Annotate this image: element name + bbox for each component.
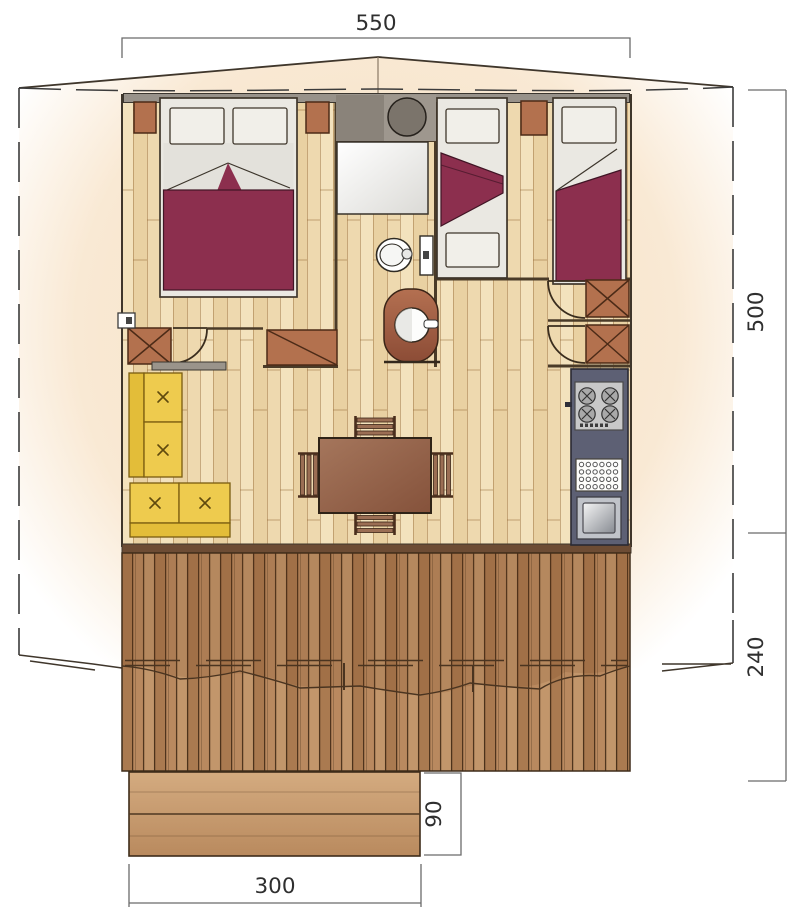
bottom-wall <box>122 544 631 553</box>
bedside-cushion-left <box>134 102 156 133</box>
wardrobe-entrance <box>128 328 171 364</box>
bench-cabinet <box>267 330 337 365</box>
kitchen-handle <box>565 402 572 407</box>
bathroom-counter-left <box>336 95 384 141</box>
dimension-right-240-label: 240 <box>744 636 769 677</box>
dining-chair-right <box>431 454 453 497</box>
dimension-right-500-label: 500 <box>744 291 769 332</box>
bunk-pillow-top <box>446 109 499 143</box>
shower-tray <box>337 142 428 214</box>
dimension-steps-label: 90 <box>422 800 447 827</box>
sofa-back-vertical <box>129 373 144 477</box>
dining-table <box>319 438 431 513</box>
deck-shade <box>122 553 630 694</box>
entrance-mat <box>152 362 226 370</box>
entrance-lock-latch <box>126 317 132 324</box>
deck <box>122 553 630 771</box>
bedside-cushion-middle <box>521 101 547 135</box>
steps <box>129 772 420 856</box>
sofa-back-horizontal <box>130 523 230 537</box>
kitchen-unit <box>565 369 628 545</box>
floor-plan-drawing: 550 500 240 90 300 <box>0 0 800 924</box>
faucet <box>424 320 438 328</box>
dimension-bottom-label: 300 <box>254 874 295 899</box>
double-bed-pillow-right <box>233 108 287 144</box>
single-bed-pillow <box>562 107 616 143</box>
double-bed-pillow-left <box>170 108 224 144</box>
dimension-steps: 90 <box>422 773 461 855</box>
dimension-top: 550 <box>122 11 630 58</box>
dimension-right: 500 240 <box>744 90 786 781</box>
floor-plan: 550 500 240 90 300 <box>0 0 800 924</box>
bedside-cushion-right <box>306 102 329 133</box>
dining-chair-top <box>356 416 395 438</box>
water-heater <box>388 98 426 136</box>
dining-chair-left <box>298 454 320 497</box>
toilet-bowl-inner <box>380 244 404 266</box>
kitchen-sink <box>577 497 621 539</box>
wardrobe-bedroom2 <box>586 280 629 317</box>
vanity <box>384 289 440 362</box>
dining-chair-bottom <box>356 513 395 535</box>
double-bed-blanket <box>164 190 294 290</box>
toilet-flush <box>402 249 412 259</box>
wardrobe-hall <box>586 325 629 363</box>
bunk-pillow-bottom <box>446 233 499 267</box>
interior <box>118 94 631 554</box>
dimension-top-label: 550 <box>355 11 396 36</box>
toilet-button <box>423 251 429 259</box>
drainer <box>576 459 622 491</box>
stove <box>575 382 623 430</box>
dimension-bottom: 300 <box>129 864 421 907</box>
